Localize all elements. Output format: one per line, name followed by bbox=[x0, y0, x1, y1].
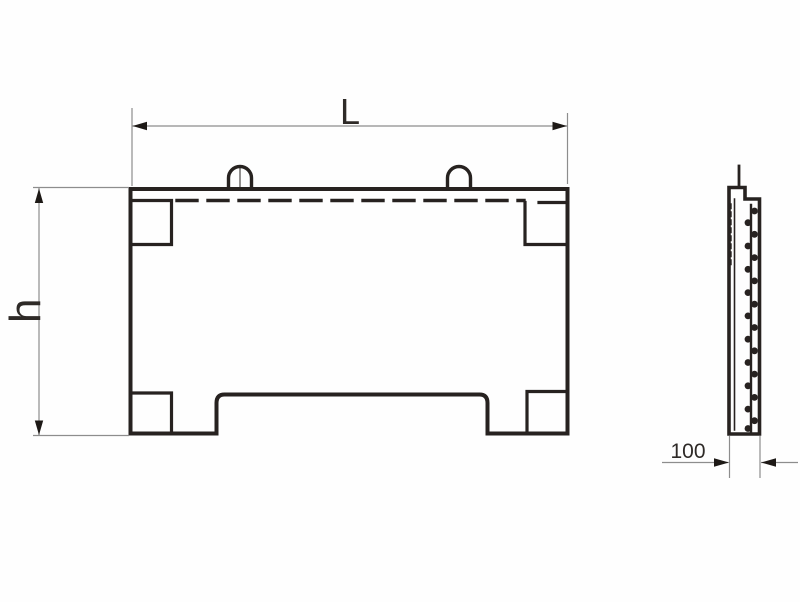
corner-plate-top-left bbox=[131, 201, 172, 245]
dimension-thickness: 100 bbox=[662, 436, 798, 478]
arrowhead-down bbox=[35, 421, 43, 436]
arrowhead-up bbox=[35, 189, 43, 204]
arrowhead-left bbox=[133, 122, 148, 130]
corner-plate-top-right bbox=[525, 203, 567, 245]
front-view bbox=[131, 166, 568, 434]
height-label: h bbox=[1, 299, 50, 323]
panel-technical-drawing: L h bbox=[0, 0, 800, 602]
corner-plate-bottom-right bbox=[527, 392, 567, 434]
dimension-length: L bbox=[132, 91, 568, 186]
length-label: L bbox=[340, 91, 360, 132]
arrowhead-thickness-left bbox=[714, 458, 729, 466]
drawing-canvas: L h bbox=[0, 0, 800, 602]
panel-outline bbox=[131, 189, 568, 434]
thickness-label: 100 bbox=[670, 440, 705, 463]
arrowhead-thickness-right bbox=[761, 458, 776, 466]
corner-plate-bottom-left bbox=[131, 393, 172, 433]
side-view bbox=[729, 166, 760, 434]
arrowhead-right bbox=[553, 122, 568, 130]
lifting-loop-right bbox=[448, 167, 471, 189]
dimension-height: h bbox=[1, 188, 129, 436]
